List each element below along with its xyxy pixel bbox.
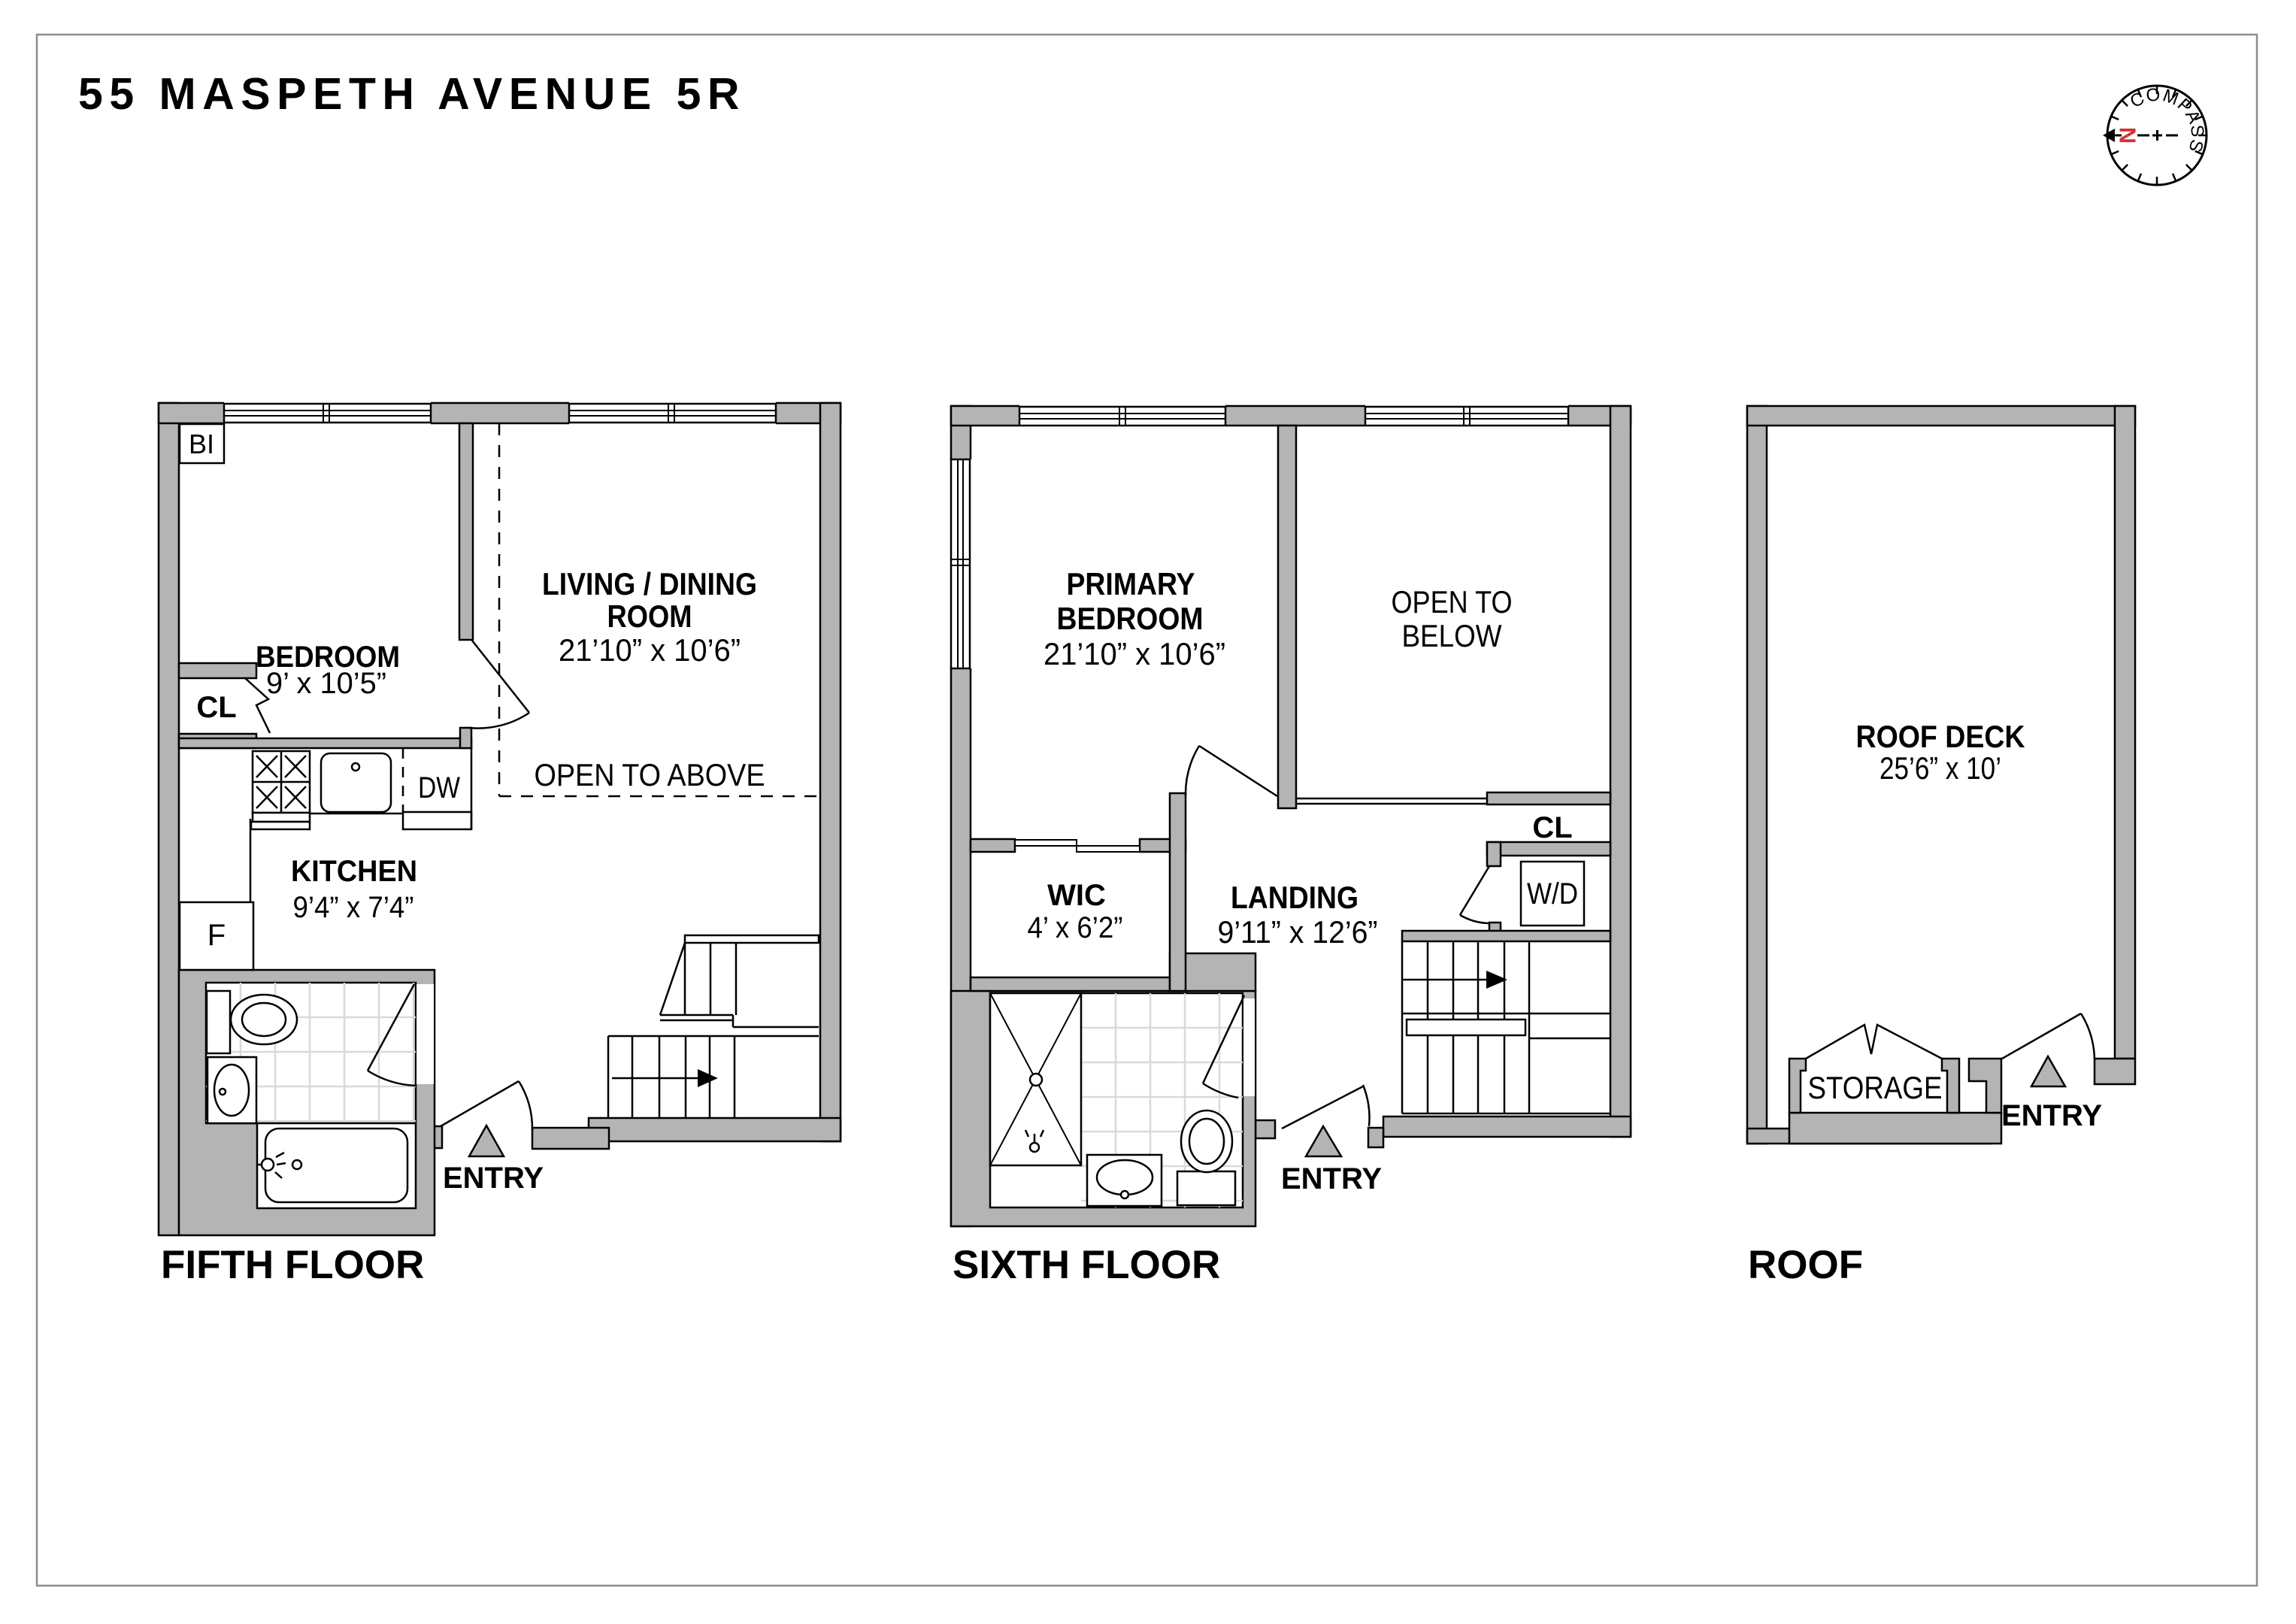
- svg-text:9’4” x 7’4”: 9’4” x 7’4”: [293, 891, 414, 924]
- svg-text:LIVING / DINING: LIVING / DINING: [542, 566, 757, 601]
- svg-text:LANDING: LANDING: [1231, 880, 1359, 915]
- svg-text:SIXTH FLOOR: SIXTH FLOOR: [953, 1243, 1220, 1287]
- svg-text:ENTRY: ENTRY: [1281, 1162, 1382, 1195]
- svg-text:ROOF: ROOF: [1748, 1243, 1863, 1287]
- svg-text:ENTRY: ENTRY: [443, 1162, 544, 1195]
- svg-text:BELOW: BELOW: [1402, 618, 1502, 653]
- svg-text:KITCHEN: KITCHEN: [291, 855, 417, 888]
- svg-text:BEDROOM: BEDROOM: [1057, 601, 1204, 636]
- svg-text:ENTRY: ENTRY: [2001, 1099, 2102, 1132]
- svg-text:9’11” x 12’6”: 9’11” x 12’6”: [1218, 914, 1378, 950]
- svg-text:OPEN TO: OPEN TO: [1392, 584, 1513, 620]
- svg-text:WIC: WIC: [1047, 879, 1106, 912]
- svg-text:OPEN TO ABOVE: OPEN TO ABOVE: [535, 757, 765, 792]
- svg-text:PRIMARY: PRIMARY: [1067, 566, 1195, 601]
- svg-text:DW: DW: [418, 771, 460, 804]
- svg-text:CL: CL: [196, 691, 236, 724]
- svg-text:ROOM: ROOM: [607, 598, 692, 634]
- svg-text:CL: CL: [1532, 811, 1572, 844]
- svg-text:ROOF DECK: ROOF DECK: [1856, 719, 2025, 754]
- svg-text:4’ x 6’2”: 4’ x 6’2”: [1028, 911, 1123, 944]
- svg-text:55 MASPETH AVENUE 5R: 55 MASPETH AVENUE 5R: [78, 69, 746, 119]
- svg-text:STORAGE: STORAGE: [1808, 1070, 1943, 1105]
- svg-text:21’10” x 10’6”: 21’10” x 10’6”: [559, 632, 741, 668]
- svg-text:FIFTH FLOOR: FIFTH FLOOR: [161, 1243, 424, 1287]
- svg-text:BI: BI: [189, 429, 214, 459]
- svg-text:N: N: [2115, 127, 2141, 144]
- svg-text:F: F: [207, 919, 226, 952]
- svg-text:21’10” x 10’6”: 21’10” x 10’6”: [1043, 636, 1225, 671]
- svg-text:W/D: W/D: [1527, 877, 1578, 910]
- svg-text:9’ x 10’5”: 9’ x 10’5”: [266, 667, 386, 700]
- svg-text:25’6” x 10’: 25’6” x 10’: [1880, 750, 2001, 786]
